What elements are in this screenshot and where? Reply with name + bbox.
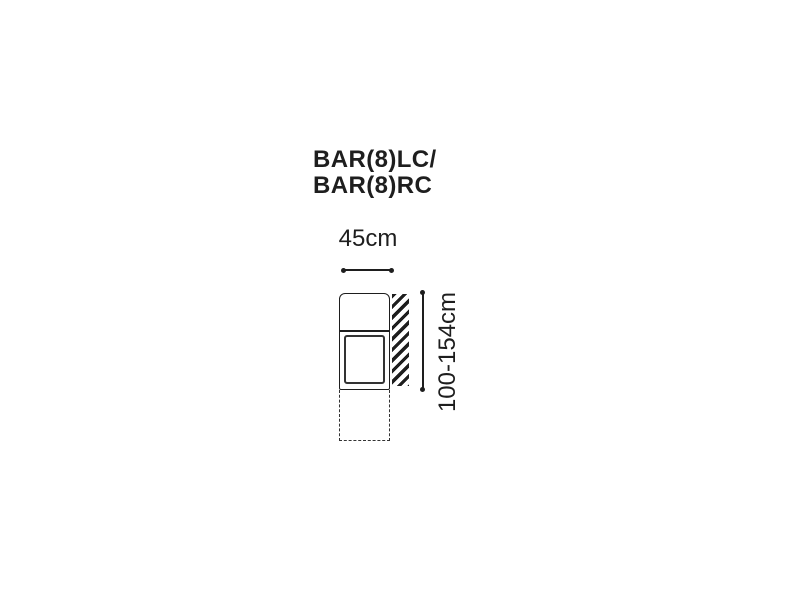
product-title: BAR(8)LC/ BAR(8)RC bbox=[313, 147, 437, 199]
fixture-window-frame bbox=[344, 335, 385, 384]
height-dimension-endpoint-top bbox=[420, 290, 425, 295]
width-dimension-label: 45cm bbox=[339, 226, 398, 252]
width-dimension-line bbox=[343, 269, 392, 271]
fixture-extension-dashed-outline bbox=[339, 390, 390, 441]
height-dimension-label: 100-154cm bbox=[435, 292, 461, 412]
product-title-line1: BAR(8)LC/ bbox=[313, 147, 437, 173]
wall-hatch bbox=[392, 294, 409, 386]
dimension-diagram: BAR(8)LC/ BAR(8)RC 45cm 100-154cm bbox=[0, 0, 800, 600]
fixture-body-outline bbox=[339, 293, 390, 390]
height-dimension-line bbox=[422, 293, 424, 390]
width-dimension-endpoint-right bbox=[389, 268, 394, 273]
fixture-divider-line bbox=[340, 330, 389, 332]
product-title-line2: BAR(8)RC bbox=[313, 173, 437, 199]
width-dimension-endpoint-left bbox=[341, 268, 346, 273]
height-dimension-endpoint-bottom bbox=[420, 387, 425, 392]
